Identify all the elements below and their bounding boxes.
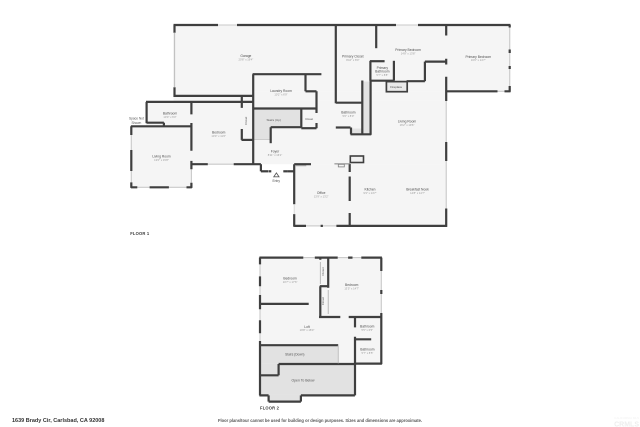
svg-text:FLOOR 1: FLOOR 1 [130, 231, 150, 236]
svg-text:19'8" x 18'0": 19'8" x 18'0" [300, 328, 315, 332]
svg-text:Stairs (Down): Stairs (Down) [285, 353, 304, 357]
svg-text:Closet: Closet [321, 297, 325, 305]
svg-text:Open To Below: Open To Below [292, 379, 315, 383]
svg-text:Bathroom: Bathroom [360, 325, 375, 329]
svg-text:9'3" x 14'7": 9'3" x 14'7" [363, 191, 376, 195]
svg-text:Floor plans/tour cannot be use: Floor plans/tour cannot be used for buil… [218, 418, 422, 423]
svg-text:Entry: Entry [272, 179, 280, 183]
svg-text:Bedroom: Bedroom [345, 283, 359, 287]
svg-text:13'9" x 13'2": 13'9" x 13'2" [314, 195, 329, 199]
svg-text:9'10" x 8'0": 9'10" x 8'0" [346, 58, 359, 62]
svg-text:13'0" x 15'8": 13'0" x 15'8" [154, 158, 169, 162]
svg-text:14'8" x 14'7": 14'8" x 14'7" [410, 191, 425, 195]
svg-text:Bathroom: Bathroom [341, 111, 356, 115]
svg-text:FLOOR 2: FLOOR 2 [260, 406, 280, 411]
svg-text:Primary Bedroom: Primary Bedroom [465, 55, 491, 59]
svg-text:5'7" x 8'5": 5'7" x 8'5" [362, 351, 374, 355]
svg-text:Garage: Garage [240, 54, 251, 58]
svg-text:1639 Brady Cir, Carlsbad, CA 9: 1639 Brady Cir, Carlsbad, CA 92008 [12, 418, 104, 424]
svg-text:16'0" x 14'7": 16'0" x 14'7" [471, 58, 486, 62]
svg-text:Closet: Closet [244, 117, 248, 125]
svg-text:Shown: Shown [132, 121, 142, 125]
svg-text:Closet: Closet [305, 117, 313, 121]
svg-text:10'0" x 11'6": 10'0" x 11'6" [211, 134, 226, 138]
svg-text:Fireplace: Fireplace [390, 85, 402, 89]
svg-text:Foyer: Foyer [271, 150, 280, 154]
svg-text:CRMLS: CRMLS [614, 422, 639, 427]
svg-text:10'2" x 6'9": 10'2" x 6'9" [274, 92, 287, 96]
svg-text:Stairs (Up): Stairs (Up) [267, 118, 281, 122]
svg-text:10'0" x 6'0": 10'0" x 6'0" [163, 115, 176, 119]
svg-text:5'7" x 8'8": 5'7" x 8'8" [376, 73, 388, 77]
svg-text:8'11" x 16'1": 8'11" x 16'1" [268, 153, 283, 157]
svg-text:CALIFORNIA MLS: CALIFORNIA MLS [614, 416, 639, 420]
svg-text:Breakfast Nook: Breakfast Nook [406, 188, 429, 192]
svg-text:5'5" x 6'5": 5'5" x 6'5" [361, 328, 373, 332]
svg-text:16'2" x 19'6": 16'2" x 19'6" [400, 123, 415, 127]
svg-text:5'0" x 8'0": 5'0" x 8'0" [343, 114, 355, 118]
svg-text:14'8" x 13'8": 14'8" x 13'8" [401, 51, 416, 55]
svg-text:Primary Closet: Primary Closet [342, 55, 364, 59]
svg-text:Bathroom: Bathroom [375, 70, 390, 74]
svg-text:Bedroom: Bedroom [212, 130, 226, 134]
svg-text:Closet: Closet [321, 267, 325, 275]
svg-text:Bathroom: Bathroom [163, 111, 178, 115]
svg-text:Kitchen: Kitchen [365, 188, 376, 192]
svg-text:Living Room: Living Room [398, 120, 417, 124]
svg-text:13'5" x 14'7": 13'5" x 14'7" [344, 287, 359, 291]
svg-text:Office: Office [317, 191, 326, 195]
svg-text:10'7" x 17'6": 10'7" x 17'6" [283, 280, 298, 284]
svg-text:20'8" x 19'4": 20'8" x 19'4" [239, 57, 254, 61]
